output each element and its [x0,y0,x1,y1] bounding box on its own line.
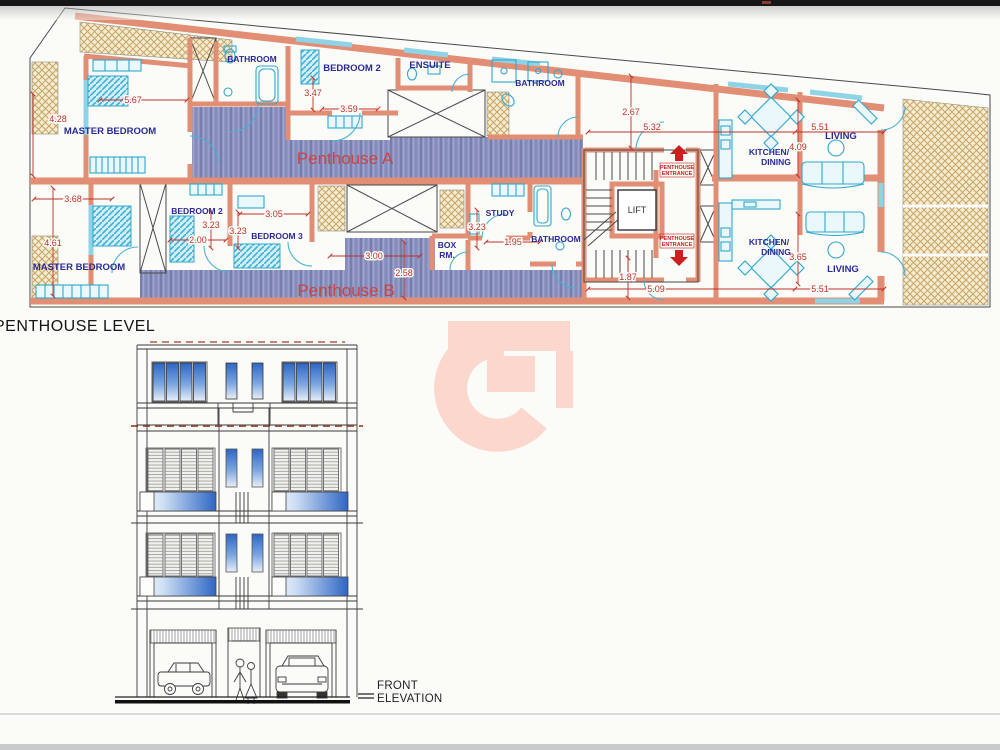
side-table-living-b [828,242,844,258]
entrance-a-label-2: ENTRANCE [662,171,693,177]
penthouse-entrances: PENTHOUSE ENTRANCE PENTHOUSE ENTRANCE [660,145,695,266]
sofa-living-b [806,212,864,236]
scan-edge-bottom [0,744,1000,750]
side-table-living-a [828,140,844,156]
dim-study-w: 1.95 [504,237,522,247]
bed-master-b [93,206,131,246]
room-label-master-a: MASTER BEDROOM [64,126,156,137]
entrance-arrow-up-icon [670,145,688,161]
room-label-bedroom2-a: BEDROOM 2 [323,63,381,74]
scan-shadow [0,6,1000,20]
penthouse-windows [152,362,337,402]
dim-entry-b: 1.87 [619,272,637,282]
room-label-kitchen-a-1: KITCHEN/ [749,147,790,157]
dining-table-a [751,97,791,137]
sofa-living-a [802,162,864,188]
bed-bedroom2-a [301,50,319,84]
closet-b [140,183,166,273]
room-label-living-b: LIVING [827,264,859,275]
architectural-drawing-sheet: LIFT PENTHOUSE ENTRANCE PENTHOUSE ENTRAN… [0,0,1000,750]
room-label-box-2: RM. [439,250,455,260]
lift-label: LIFT [628,205,647,215]
dim-kitchen-a-w: 5.32 [643,122,661,132]
skylight-a [388,90,485,137]
wc-bath-b [562,208,571,220]
room-label-bathroom-a: BATHROOM [515,78,564,88]
scan-edge-top [0,0,1000,6]
dim-bedroom3-d: 3.23 [229,226,247,236]
dim-bedroom3-w: 3.05 [265,209,283,219]
car-left [158,663,210,695]
desk-bedroom3 [238,196,264,208]
room-label-ensuite-a: ENSUITE [409,60,450,71]
floor2-windows [146,448,341,492]
elevation-title-line1: FRONT [377,680,418,692]
room-label-kitchen-b-1: KITCHEN/ [749,237,790,247]
dim-kitchen-b-w: 5.09 [647,284,665,294]
room-label-study-b: STUDY [486,208,515,218]
scan-artifact [762,1,771,4]
room-label-bathroom-b: BATHROOM [531,234,580,244]
dim-bedroom2-b-d: 3.23 [202,220,220,230]
dim-hall-b-w: 3.00 [365,251,383,261]
dim-master-b-w: 3.68 [64,194,82,204]
dim-hall-a: 2.67 [622,107,640,117]
bed-bedroom3 [234,244,280,268]
room-label-bedroom3-b: BEDROOM 3 [251,231,303,241]
dim-study-d: 3.23 [468,222,486,232]
room-label-box-1: BOX [438,240,457,250]
sink-bath-top [224,88,232,96]
dim-master-a-w: 5.67 [124,95,142,105]
elevation-title-line2: ELEVATION [377,693,443,705]
floor-plan: LIFT PENTHOUSE ENTRANCE PENTHOUSE ENTRAN… [30,8,990,307]
entrance-b-label-2: ENTRANCE [662,242,693,248]
dim-bedroom2-a-w: 3.59 [340,104,358,114]
drawing-svg: LIFT PENTHOUSE ENTRANCE PENTHOUSE ENTRAN… [0,0,1000,750]
dim-hall-b-d: 2.58 [395,268,413,278]
ground-line [115,700,350,704]
room-label-bathroom-top-a: BATHROOM [227,54,276,64]
unit-b-label: Penthouse B [297,281,394,300]
elevation-title-mark [358,694,374,698]
room-label-kitchen-a-2: DINING [761,157,791,167]
stair-break-line [584,212,620,246]
watermark-g-logo [448,321,573,435]
dim-living-b-w: 5.51 [811,284,829,294]
bed-master-a [88,76,128,106]
entrance-arrow-down-icon [670,250,688,266]
plan-title: PENTHOUSE LEVEL [0,318,155,335]
dim-living-b-d: 3.65 [789,252,807,262]
room-label-bedroom2-b: BEDROOM 2 [171,206,223,216]
tv-unit-living-b [849,276,873,300]
skylight-b [347,185,437,232]
dim-master-b-d: 4.61 [44,238,62,248]
dim-living-a-d: 4.09 [789,142,807,152]
car-right [276,656,328,698]
unit-a-label: Penthouse A [297,149,394,168]
room-label-master-b: MASTER BEDROOM [33,262,125,273]
ground-floor [115,628,350,704]
dim-bedroom2-b-w: 2.00 [189,235,207,245]
floor3-windows [146,533,341,577]
dim-bedroom2-a-d: 3.47 [304,88,322,98]
room-label-living-a: LIVING [825,131,857,142]
room-label-kitchen-b-2: DINING [761,247,791,257]
front-elevation: FRONT ELEVATION [115,342,443,705]
dim-master-a-d: 4.28 [49,114,67,124]
wardrobe-master-a [90,157,145,173]
